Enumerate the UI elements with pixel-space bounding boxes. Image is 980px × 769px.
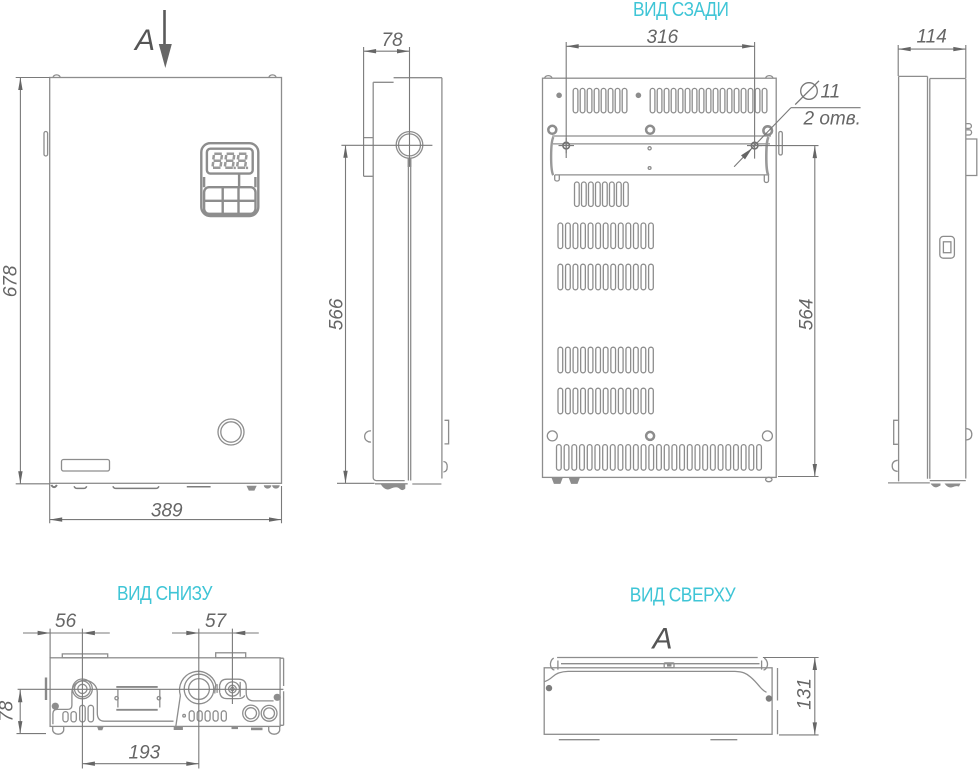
svg-text:78: 78 — [0, 700, 17, 722]
svg-text:678: 678 — [1, 265, 22, 297]
svg-text:ВИД СВЕРХУ: ВИД СВЕРХУ — [630, 584, 736, 606]
svg-text:56: 56 — [55, 611, 77, 632]
svg-text:2 отв.: 2 отв. — [803, 109, 861, 130]
svg-text:564: 564 — [796, 299, 817, 331]
svg-text:57: 57 — [205, 611, 228, 632]
svg-text:A: A — [651, 622, 673, 655]
svg-text:114: 114 — [917, 27, 947, 48]
svg-text:ВИД СНИЗУ: ВИД СНИЗУ — [117, 583, 213, 605]
svg-text:11: 11 — [821, 82, 841, 103]
svg-text:ВИД СЗАДИ: ВИД СЗАДИ — [633, 0, 729, 21]
svg-text:389: 389 — [151, 500, 183, 521]
svg-text:78: 78 — [382, 30, 404, 51]
svg-text:A: A — [133, 24, 155, 57]
svg-text:316: 316 — [647, 27, 679, 48]
svg-text:566: 566 — [327, 298, 348, 330]
svg-text:193: 193 — [129, 742, 161, 763]
svg-text:131: 131 — [795, 678, 816, 710]
